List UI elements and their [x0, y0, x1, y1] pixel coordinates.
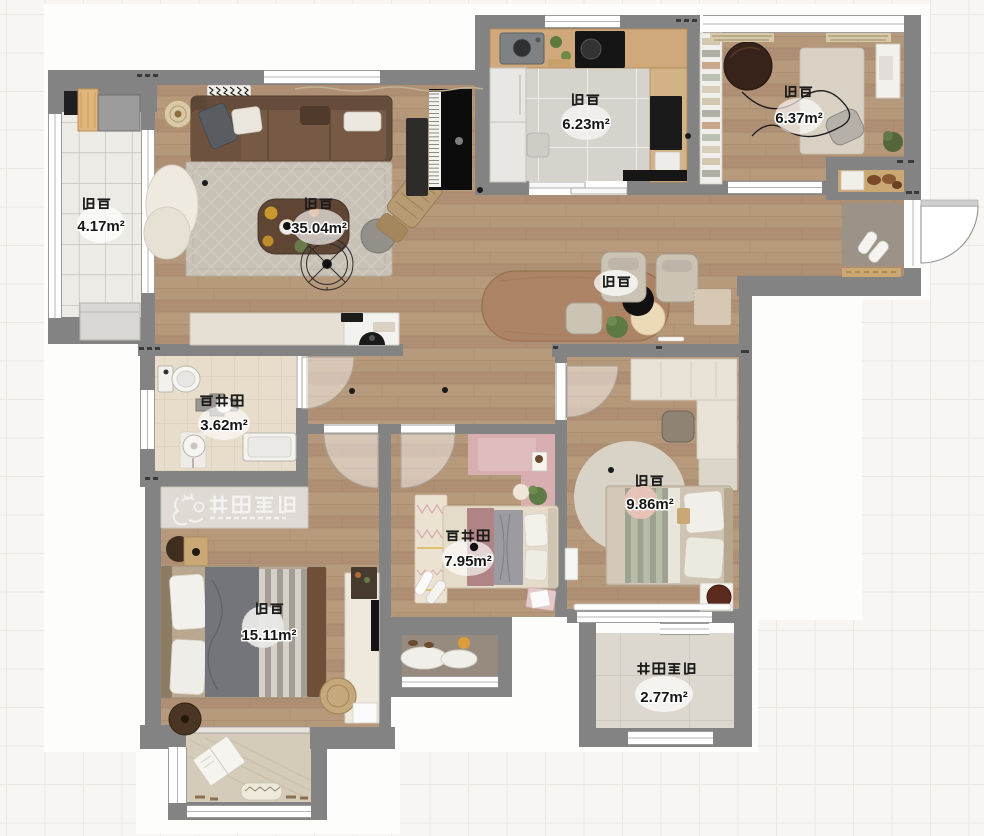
svg-text:15.11m²: 15.11m²: [241, 627, 296, 644]
svg-text:6.37m²: 6.37m²: [775, 110, 823, 127]
svg-text:2.77m²: 2.77m²: [640, 689, 688, 706]
svg-text:6.23m²: 6.23m²: [562, 116, 610, 133]
svg-text:3.62m²: 3.62m²: [200, 417, 248, 434]
svg-text:7.95m²: 7.95m²: [444, 553, 492, 570]
svg-text:35.04m²: 35.04m²: [291, 220, 347, 237]
svg-text:9.86m²: 9.86m²: [626, 496, 674, 513]
svg-text:4.17m²: 4.17m²: [77, 218, 125, 235]
